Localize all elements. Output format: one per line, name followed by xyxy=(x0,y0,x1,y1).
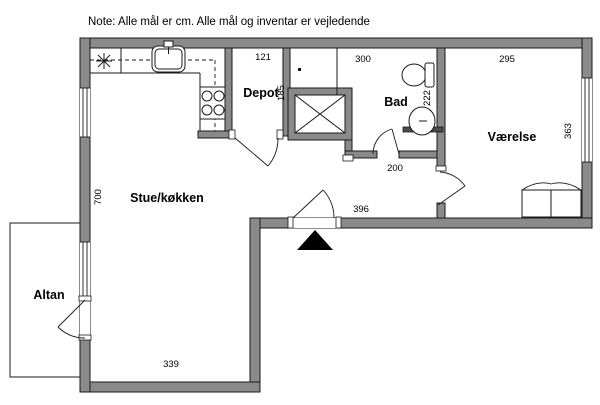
depot-door xyxy=(235,138,278,166)
toilet-icon xyxy=(402,63,434,87)
outer-wall-bottom-left xyxy=(80,382,260,392)
installation-shaft xyxy=(288,88,352,156)
dim-bath-depth: 222 xyxy=(422,90,433,106)
bedroom-door-leaf xyxy=(438,186,465,205)
dim-depot-depth: 185 xyxy=(276,85,287,101)
depot-wall-stub xyxy=(198,131,232,138)
dim-bedroom-depth: 363 xyxy=(563,123,574,139)
floor-plan-svg: Note: Alle mål er cm. Alle mål og invent… xyxy=(0,0,600,405)
window-left-upper xyxy=(80,88,90,137)
bath-door-arc xyxy=(373,129,392,154)
window-left-lower xyxy=(80,242,90,300)
room-label-bath: Bad xyxy=(384,95,408,109)
dim-hall: 200 xyxy=(387,163,403,174)
floor-plan: Note: Alle mål er cm. Alle mål og invent… xyxy=(0,0,600,405)
niche-dot xyxy=(298,68,301,71)
shaft-tail-jamb xyxy=(343,155,353,161)
balcony-door-opening xyxy=(80,300,90,338)
window-right xyxy=(582,78,592,162)
dim-entry-wall: 396 xyxy=(353,204,369,215)
entrance-jamb-left xyxy=(288,217,293,228)
washbasin-icon xyxy=(409,107,435,135)
dim-bath-width: 300 xyxy=(355,54,371,65)
depot-wall-left xyxy=(225,48,232,136)
entrance-door xyxy=(293,190,334,218)
entrance-jamb-right xyxy=(336,217,341,228)
wardrobe-door-arc-right xyxy=(551,183,581,190)
appliance-asterisk-icon xyxy=(96,53,112,69)
depot-jamb-right xyxy=(277,130,283,139)
dim-bedroom-width: 295 xyxy=(499,54,515,65)
plan-note: Note: Alle mål er cm. Alle mål og invent… xyxy=(88,16,370,28)
entrance-door-leaf xyxy=(293,190,323,218)
depot-door-arc xyxy=(268,138,278,166)
room-label-balcony: Altan xyxy=(33,288,64,302)
dim-depot-width: 121 xyxy=(255,52,271,63)
bath-bedroom-wall xyxy=(437,48,445,168)
dim-living-width: 339 xyxy=(163,359,179,370)
entrance-opening xyxy=(291,218,338,228)
bedroom-door xyxy=(438,172,465,205)
kitchen-sink-icon xyxy=(152,41,185,72)
entrance-arrow xyxy=(297,230,333,250)
room-label-bedroom: Værelse xyxy=(488,130,537,144)
toilet-tank xyxy=(425,63,434,87)
depot-door-leaf xyxy=(235,138,268,166)
outer-wall-east-lower xyxy=(250,218,260,392)
bath-door xyxy=(373,129,399,154)
room-label-living-kitchen: Stue/køkken xyxy=(130,191,204,205)
toilet-bowl xyxy=(402,64,426,86)
bedroom-door-arc xyxy=(440,172,465,186)
kitchen-faucet xyxy=(164,41,173,47)
bedroom-door-jamb-top xyxy=(436,166,446,171)
wardrobe-icon xyxy=(522,183,581,217)
room-label-depot: Depot xyxy=(243,86,279,100)
entrance-door-arc xyxy=(323,190,334,218)
depot-jamb-left xyxy=(229,130,235,139)
bath-door-leaf xyxy=(392,129,399,154)
stove-icon xyxy=(200,87,225,119)
dim-living-height: 700 xyxy=(93,189,104,205)
wardrobe-door-arc-left xyxy=(522,183,551,190)
bath-wall-south-right xyxy=(399,151,437,158)
